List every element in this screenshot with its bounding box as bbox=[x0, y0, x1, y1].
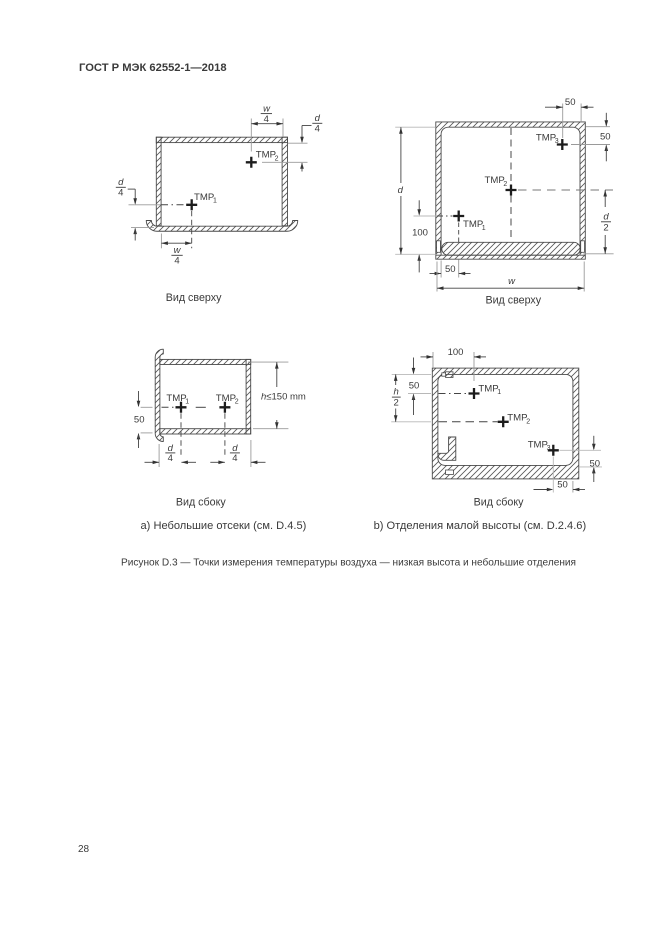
svg-text:28: 28 bbox=[78, 844, 90, 855]
svg-text:3: 3 bbox=[547, 445, 551, 452]
svg-text:h: h bbox=[394, 387, 399, 398]
svg-text:Вид сбоку: Вид сбоку bbox=[474, 497, 525, 509]
svg-text:2: 2 bbox=[603, 223, 608, 234]
svg-text:100: 100 bbox=[412, 228, 428, 239]
svg-text:TMP: TMP bbox=[485, 175, 505, 186]
svg-text:TMP: TMP bbox=[194, 192, 214, 203]
svg-text:4: 4 bbox=[264, 114, 269, 125]
svg-text:Рисунок D.3 — Точки измерения: Рисунок D.3 — Точки измерения температур… bbox=[121, 557, 576, 569]
svg-text:w: w bbox=[508, 276, 516, 287]
svg-text:50: 50 bbox=[565, 97, 576, 108]
svg-text:50: 50 bbox=[600, 131, 611, 142]
svg-text:1: 1 bbox=[213, 198, 217, 205]
svg-text:TMP: TMP bbox=[166, 393, 186, 404]
svg-text:b) Отделения малой высоты (см.: b) Отделения малой высоты (см. D.2.4.6) bbox=[374, 520, 587, 532]
svg-text:TMP: TMP bbox=[256, 149, 276, 160]
svg-text:1: 1 bbox=[482, 225, 486, 232]
svg-text:50: 50 bbox=[590, 458, 601, 469]
svg-text:3: 3 bbox=[555, 138, 559, 145]
svg-text:50: 50 bbox=[134, 414, 145, 425]
svg-text:4: 4 bbox=[174, 256, 179, 267]
svg-text:2: 2 bbox=[503, 181, 507, 188]
svg-text:d: d bbox=[168, 443, 174, 454]
svg-text:w: w bbox=[263, 104, 271, 115]
svg-text:d: d bbox=[398, 185, 404, 196]
svg-text:1: 1 bbox=[497, 389, 501, 396]
svg-text:TMP: TMP bbox=[478, 383, 498, 394]
svg-text:d: d bbox=[315, 113, 321, 124]
svg-text:d: d bbox=[118, 177, 124, 188]
svg-text:2: 2 bbox=[526, 418, 530, 425]
svg-text:а) Небольшие отсеки (см. D.4.5: а) Небольшие отсеки (см. D.4.5) bbox=[141, 520, 307, 532]
svg-text:ГОСТ Р МЭК 62552-1—2018: ГОСТ Р МЭК 62552-1—2018 bbox=[79, 62, 227, 74]
svg-text:4: 4 bbox=[118, 188, 123, 199]
svg-text:4: 4 bbox=[232, 453, 237, 464]
svg-text:1: 1 bbox=[185, 399, 189, 406]
svg-text:w: w bbox=[174, 245, 182, 256]
svg-text:d: d bbox=[232, 443, 238, 454]
svg-text:2: 2 bbox=[235, 399, 239, 406]
svg-text:TMP: TMP bbox=[507, 413, 527, 424]
svg-text:TMP: TMP bbox=[536, 132, 556, 143]
svg-text:h≤150 mm: h≤150 mm bbox=[261, 391, 306, 402]
svg-text:50: 50 bbox=[445, 264, 456, 275]
svg-text:50: 50 bbox=[409, 381, 420, 392]
svg-text:50: 50 bbox=[557, 479, 568, 490]
svg-text:TMP: TMP bbox=[528, 439, 548, 450]
svg-text:TMP: TMP bbox=[463, 219, 483, 230]
svg-text:2: 2 bbox=[275, 155, 279, 162]
svg-text:Вид сбоку: Вид сбоку bbox=[176, 497, 227, 509]
svg-text:TMP: TMP bbox=[216, 393, 236, 404]
svg-text:d: d bbox=[603, 212, 609, 223]
svg-text:Вид сверху: Вид сверху bbox=[485, 295, 541, 307]
svg-text:4: 4 bbox=[315, 124, 320, 135]
svg-text:4: 4 bbox=[168, 453, 173, 464]
svg-text:Вид сверху: Вид сверху bbox=[166, 292, 222, 304]
svg-text:100: 100 bbox=[448, 347, 464, 358]
svg-text:2: 2 bbox=[394, 398, 399, 409]
